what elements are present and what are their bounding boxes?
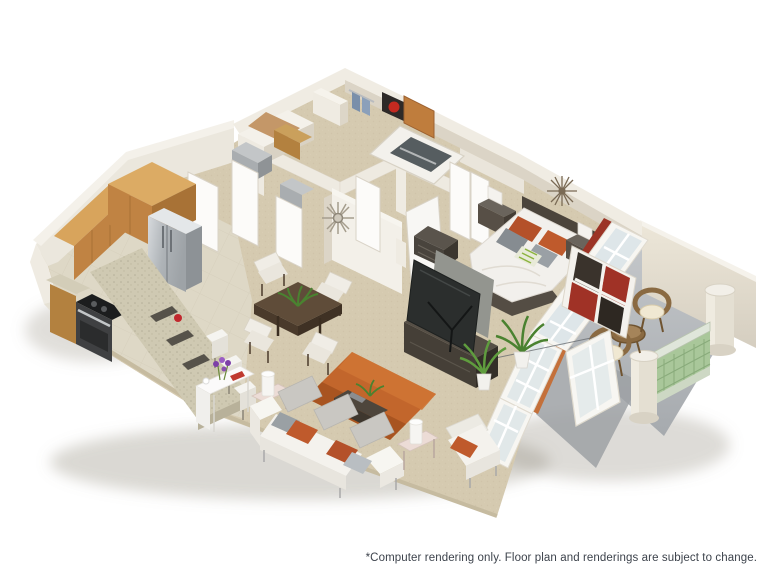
bathroom-door <box>356 176 380 252</box>
floor-plan-page: *Computer rendering only. Floor plan and… <box>0 0 764 573</box>
lamp <box>262 371 275 396</box>
bedroom-wall-upper <box>396 166 406 216</box>
starburst-clock <box>547 176 577 206</box>
disclaimer-text: *Computer rendering only. Floor plan and… <box>366 552 757 564</box>
closet-door-1 <box>232 160 258 246</box>
apple <box>174 314 182 322</box>
floor-plan-rendering: *Computer rendering only. Floor plan and… <box>0 0 764 573</box>
cup <box>203 378 209 384</box>
patio-column-left <box>629 351 659 425</box>
bedroom-closet-door-1 <box>450 162 470 240</box>
lamp <box>410 419 423 444</box>
closet-door-2 <box>276 196 302 268</box>
bedroom-wall-lower <box>396 238 406 268</box>
